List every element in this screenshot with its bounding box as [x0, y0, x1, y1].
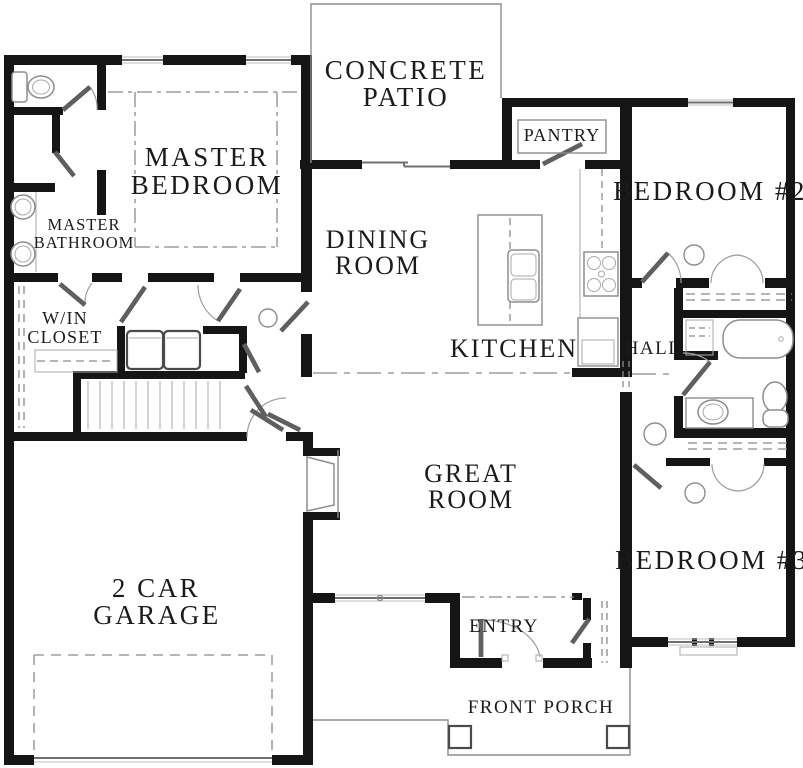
great-room-label: ROOM — [428, 485, 514, 514]
hall-label: HALL — [625, 338, 682, 359]
master-bedroom-label: BEDROOM — [131, 170, 284, 200]
range-icon — [584, 252, 618, 296]
concrete-patio-label: CONCRETE — [325, 55, 488, 85]
sliding-door-icon — [362, 163, 450, 167]
bathtub-icon — [723, 320, 793, 358]
floor-plan-drawing: CONCRETE PATIO MASTER BEDROOM MASTER BAT… — [0, 0, 803, 768]
bedroom-2-label: BEDROOM #2 — [613, 176, 803, 206]
garage-label: 2 CAR — [112, 573, 200, 603]
dining-room-label: ROOM — [335, 251, 421, 280]
room-master-bathroom: MASTER BATHROOM — [34, 215, 135, 252]
master-bathroom-label: MASTER — [48, 215, 121, 234]
porch-column-icon — [607, 726, 629, 748]
room-front-porch: FRONT PORCH — [468, 697, 615, 718]
entry-label: ENTRY — [469, 616, 539, 637]
pantry-label: PANTRY — [524, 125, 601, 145]
toilet-icon — [12, 72, 54, 102]
refrigerator-icon — [578, 318, 618, 366]
room-pantry: PANTRY — [524, 125, 601, 145]
porch-column-icon — [449, 726, 471, 748]
win-closet-label: W/IN — [42, 308, 88, 328]
room-master-bedroom: MASTER BEDROOM — [131, 142, 284, 200]
room-garage: 2 CAR GARAGE — [93, 573, 221, 630]
fireplace-icon — [307, 450, 338, 518]
washer-dryer-icon — [127, 331, 200, 369]
floor-plan-page: CONCRETE PATIO MASTER BEDROOM MASTER BAT… — [0, 0, 803, 768]
room-dining-room: DINING ROOM — [326, 225, 430, 280]
bedroom-3-label: BEDROOM #3 — [615, 545, 803, 575]
room-win-closet: W/IN CLOSET — [27, 308, 102, 347]
front-porch-label: FRONT PORCH — [468, 697, 615, 718]
concrete-patio-label: PATIO — [363, 82, 450, 112]
stairs-icon — [88, 381, 220, 429]
master-bedroom-label: MASTER — [145, 142, 270, 172]
great-room-label: GREAT — [424, 459, 518, 488]
toilet-icon — [763, 382, 788, 427]
double-sink-vanity-icon — [11, 192, 36, 272]
room-labels: CONCRETE PATIO MASTER BEDROOM MASTER BAT… — [27, 55, 803, 718]
garage-door-icon — [34, 758, 272, 762]
garage-label: GARAGE — [93, 600, 221, 630]
room-bedroom-2: BEDROOM #2 — [613, 176, 803, 206]
linen-closet-icon — [686, 320, 713, 355]
room-entry: ENTRY — [469, 616, 539, 637]
dining-room-label: DINING — [326, 225, 430, 254]
win-closet-label: CLOSET — [27, 327, 102, 347]
room-concrete-patio: CONCRETE PATIO — [325, 55, 488, 112]
room-bedroom-3: BEDROOM #3 — [615, 545, 803, 575]
room-great-room: GREAT ROOM — [424, 459, 518, 514]
master-bathroom-label: BATHROOM — [34, 233, 135, 252]
room-hall: HALL — [625, 338, 682, 359]
sink-vanity-icon — [686, 398, 753, 428]
kitchen-label: KITCHEN — [450, 334, 578, 363]
room-kitchen: KITCHEN — [450, 334, 578, 363]
